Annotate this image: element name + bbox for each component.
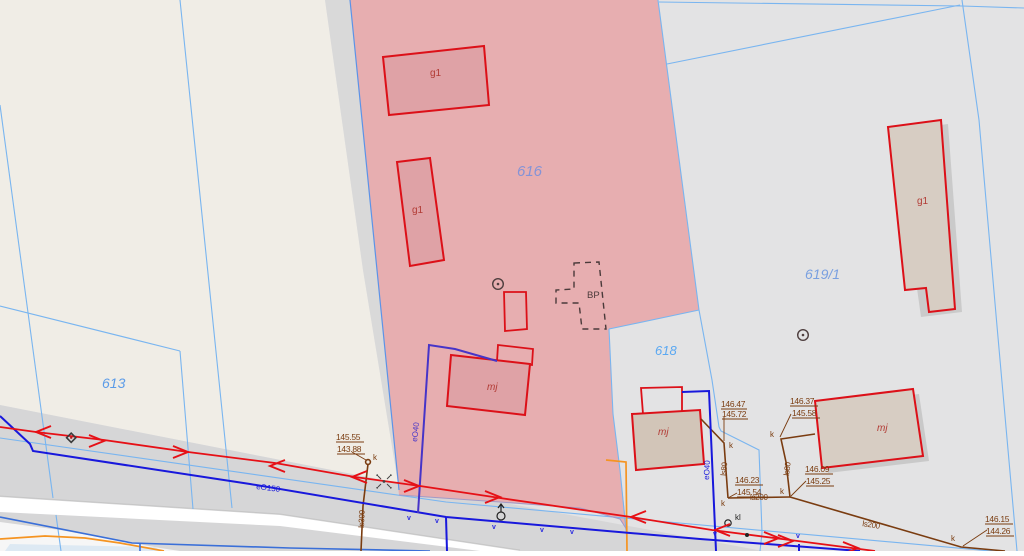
svg-text:BP: BP: [587, 290, 600, 301]
svg-text:144.26: 144.26: [986, 526, 1011, 536]
svg-text:v: v: [796, 533, 800, 540]
svg-text:v: v: [570, 529, 574, 536]
svg-text:g1: g1: [430, 68, 442, 79]
svg-text:146.09: 146.09: [805, 464, 830, 474]
svg-text:mj: mj: [658, 427, 669, 438]
svg-text:v: v: [435, 518, 439, 525]
svg-text:v: v: [492, 524, 496, 531]
svg-text:g1: g1: [412, 205, 424, 216]
svg-text:ls300: ls300: [357, 509, 367, 528]
svg-text:619/1: 619/1: [805, 266, 840, 282]
svg-text:146.37: 146.37: [790, 396, 815, 406]
svg-text:145.25: 145.25: [806, 476, 831, 486]
svg-text:145.72: 145.72: [722, 409, 747, 419]
svg-text:eO40: eO40: [702, 460, 712, 481]
svg-text:ls80: ls80: [719, 461, 729, 476]
svg-text:613: 613: [102, 375, 126, 391]
svg-text:v: v: [407, 515, 411, 522]
svg-text:146.47: 146.47: [721, 399, 746, 409]
svg-text:143.88: 143.88: [337, 444, 362, 454]
svg-text:kl: kl: [735, 513, 741, 522]
svg-text:146.15: 146.15: [985, 514, 1010, 524]
svg-text:145.55: 145.55: [336, 432, 361, 442]
svg-text:616: 616: [517, 163, 543, 180]
svg-text:v: v: [540, 527, 544, 534]
svg-text:ls200: ls200: [750, 493, 768, 502]
svg-text:v: v: [713, 531, 717, 538]
svg-text:146.23: 146.23: [735, 475, 760, 485]
svg-text:mj: mj: [877, 423, 888, 434]
svg-text:mj: mj: [487, 382, 498, 393]
svg-text:618: 618: [655, 343, 677, 358]
svg-text:145.58: 145.58: [792, 408, 817, 418]
svg-text:g1: g1: [917, 196, 929, 207]
svg-text:ls80: ls80: [782, 461, 793, 476]
